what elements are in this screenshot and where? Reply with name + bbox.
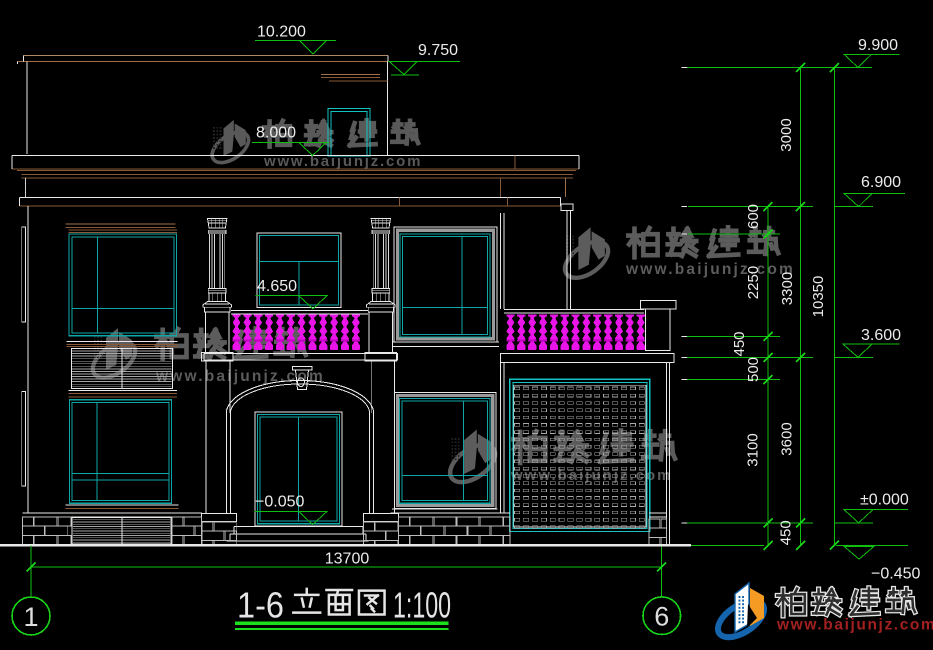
svg-text:3300: 3300 (779, 272, 796, 305)
svg-text:±0.000: ±0.000 (860, 492, 909, 509)
svg-text:500: 500 (745, 357, 762, 382)
svg-text:9.900: 9.900 (858, 37, 898, 54)
svg-text:450: 450 (778, 520, 795, 545)
svg-text:600: 600 (745, 204, 762, 229)
svg-text:−0.050: −0.050 (255, 494, 304, 511)
svg-text:1:100: 1:100 (393, 585, 451, 626)
svg-text:www.baijunjz.com: www.baijunjz.com (155, 368, 325, 385)
svg-text:3000: 3000 (778, 118, 795, 151)
svg-text:6.900: 6.900 (861, 174, 901, 191)
svg-text:2250: 2250 (745, 266, 762, 299)
svg-text:10.200: 10.200 (257, 24, 306, 41)
svg-text:1-6: 1-6 (237, 585, 284, 626)
svg-text:3.600: 3.600 (861, 327, 901, 344)
svg-text:6: 6 (654, 602, 669, 632)
svg-text:450: 450 (731, 331, 748, 356)
svg-text:www.baijunjz.com: www.baijunjz.com (625, 261, 795, 278)
svg-text:3600: 3600 (779, 422, 796, 455)
svg-text:13700: 13700 (325, 551, 370, 568)
svg-text:9.750: 9.750 (418, 42, 458, 59)
svg-text:4.650: 4.650 (257, 278, 297, 295)
svg-text:www.baijunjz.com: www.baijunjz.com (776, 617, 933, 634)
svg-text:10350: 10350 (810, 276, 827, 318)
svg-text:3100: 3100 (745, 433, 762, 466)
svg-text:1: 1 (23, 602, 38, 632)
svg-text:8.000: 8.000 (256, 125, 296, 142)
svg-text:−0.450: −0.450 (871, 566, 920, 583)
